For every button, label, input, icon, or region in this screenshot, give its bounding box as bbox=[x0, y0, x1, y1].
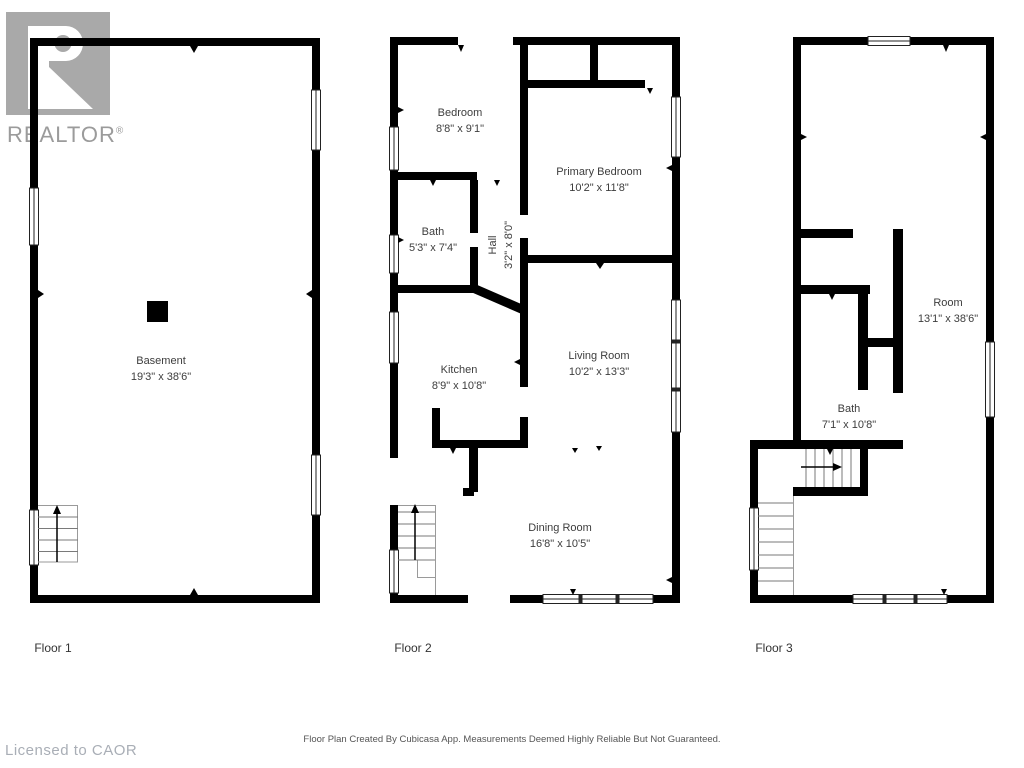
floor-1-walls bbox=[30, 38, 320, 603]
floor-3-walls bbox=[750, 37, 994, 603]
stairs-up-arrow-icon bbox=[53, 505, 61, 514]
floor-1-plan bbox=[30, 38, 321, 603]
floor-1-stairs bbox=[38, 505, 78, 562]
floor-1-windows bbox=[30, 90, 321, 565]
disclaimer-text: Floor Plan Created By Cubicasa App. Meas… bbox=[0, 734, 1024, 745]
floor-1-door-ticks bbox=[38, 46, 312, 595]
floor-3-stairs bbox=[758, 449, 851, 595]
floor-plan-canvas bbox=[0, 0, 1024, 768]
support-post bbox=[147, 301, 168, 322]
floor-plan-page: REALTOR® bbox=[0, 0, 1024, 768]
floor-2-stairs bbox=[398, 504, 436, 595]
floor-2-plan bbox=[390, 37, 681, 604]
floor-2-door-ticks bbox=[398, 45, 672, 595]
stairs-direction-arrow-icon bbox=[833, 463, 842, 471]
floor-3-plan bbox=[750, 37, 995, 604]
floor-3-windows bbox=[750, 37, 995, 604]
floor-2-walls bbox=[390, 37, 680, 603]
